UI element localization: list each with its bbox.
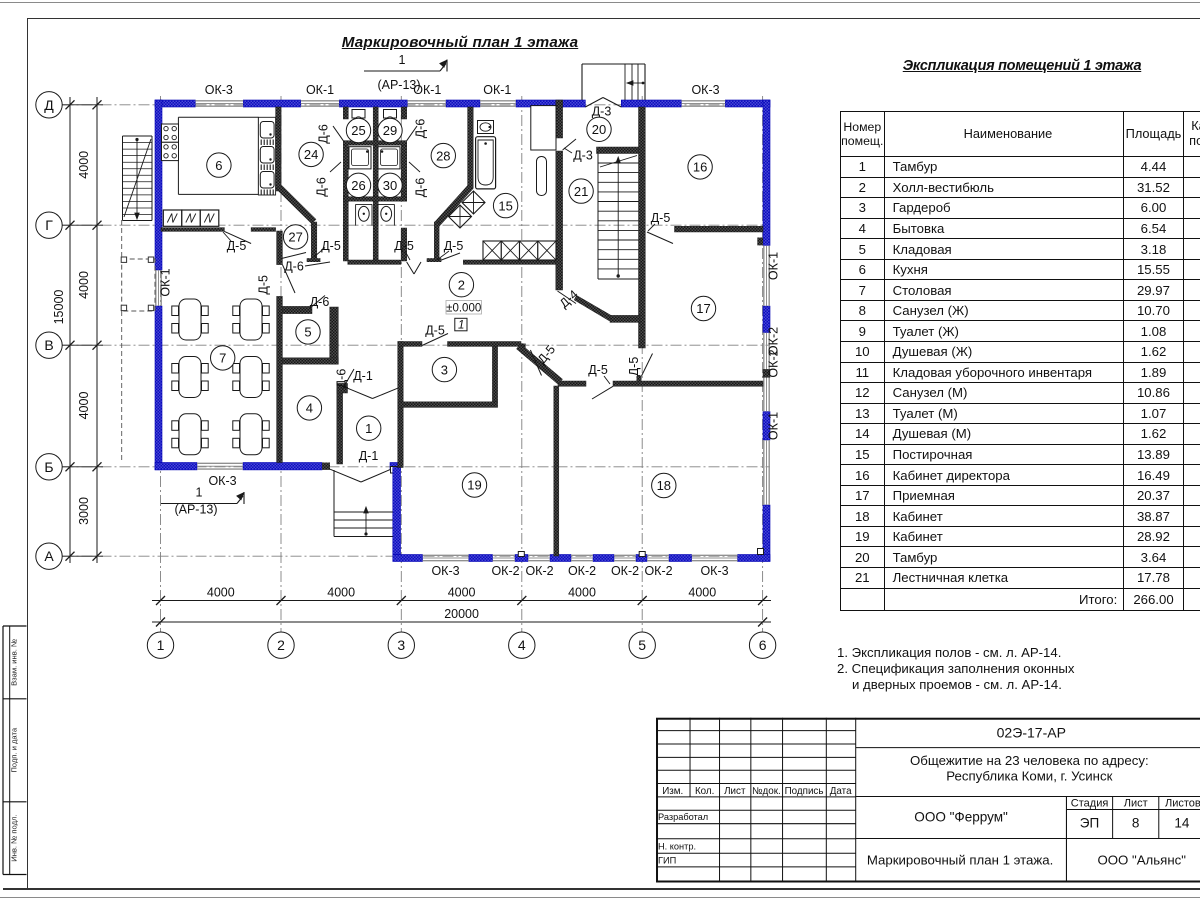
svg-text:Д-5: Д-5	[394, 239, 414, 253]
svg-text:ОК-1: ОК-1	[767, 412, 781, 440]
svg-text:1: 1	[157, 637, 165, 653]
svg-text:15: 15	[498, 198, 512, 213]
svg-text:28: 28	[436, 148, 450, 163]
svg-text:17: 17	[696, 301, 710, 316]
svg-text:3: 3	[441, 362, 448, 377]
svg-text:1: 1	[458, 320, 464, 332]
svg-text:А: А	[44, 548, 54, 564]
svg-text:ГИП: ГИП	[658, 856, 676, 866]
svg-text:26: 26	[351, 178, 365, 193]
svg-text:Маркировочный план 1 этажа.: Маркировочный план 1 этажа.	[867, 853, 1053, 868]
svg-text:Д: Д	[44, 97, 54, 113]
svg-text:Подп. и дата: Подп. и дата	[10, 727, 19, 773]
svg-text:±0.000: ±0.000	[446, 302, 481, 314]
svg-text:№док.: №док.	[752, 786, 781, 797]
svg-text:6: 6	[759, 637, 767, 653]
svg-text:В: В	[44, 337, 53, 353]
svg-text:18: 18	[657, 478, 671, 493]
svg-text:Д-1: Д-1	[353, 369, 373, 383]
svg-text:Д-3: Д-3	[592, 105, 612, 119]
svg-text:Взам. инв. №: Взам. инв. №	[10, 639, 19, 686]
svg-text:Дата: Дата	[830, 786, 852, 797]
svg-text:ОК-2: ОК-2	[525, 564, 553, 578]
svg-text:Д-5: Д-5	[444, 239, 464, 253]
svg-text:ОК-2: ОК-2	[767, 349, 781, 377]
svg-text:Д-6: Д-6	[317, 124, 331, 144]
svg-text:4000: 4000	[207, 586, 235, 600]
svg-text:16: 16	[693, 160, 707, 175]
svg-text:Общежитие на 23 человека по ад: Общежитие на 23 человека по адресу:	[910, 753, 1149, 768]
svg-text:25: 25	[351, 123, 365, 138]
svg-text:Д-5: Д-5	[257, 275, 271, 295]
svg-text:Листов: Листов	[1165, 798, 1200, 810]
svg-text:Изм.: Изм.	[662, 786, 683, 797]
svg-text:29: 29	[383, 123, 397, 138]
svg-text:4000: 4000	[568, 586, 596, 600]
svg-text:20: 20	[592, 122, 606, 137]
svg-text:3: 3	[397, 637, 405, 653]
svg-text:ОК-3: ОК-3	[700, 564, 728, 578]
svg-text:19: 19	[467, 478, 481, 493]
svg-text:Г: Г	[45, 217, 53, 233]
svg-text:ОК-2: ОК-2	[644, 564, 672, 578]
svg-text:7: 7	[219, 351, 226, 366]
svg-text:20000: 20000	[444, 607, 479, 621]
svg-text:4: 4	[518, 637, 526, 653]
svg-text:27: 27	[288, 230, 302, 245]
svg-text:ОК-3: ОК-3	[205, 83, 233, 97]
svg-text:Д-5: Д-5	[651, 211, 671, 225]
svg-text:Д-3: Д-3	[573, 149, 593, 163]
svg-text:Д-5: Д-5	[227, 239, 247, 253]
svg-text:4000: 4000	[77, 392, 91, 420]
svg-text:ОК-1: ОК-1	[413, 83, 441, 97]
svg-text:Б: Б	[44, 459, 53, 475]
svg-text:4000: 4000	[77, 271, 91, 299]
svg-text:14: 14	[1174, 816, 1190, 831]
svg-text:ООО "Альянс": ООО "Альянс"	[1097, 853, 1186, 868]
svg-text:ОК-1: ОК-1	[306, 83, 334, 97]
svg-text:Разработал: Разработал	[658, 813, 708, 823]
svg-text:4: 4	[306, 401, 313, 416]
svg-text:3000: 3000	[77, 497, 91, 525]
svg-text:Подпись: Подпись	[785, 786, 824, 797]
svg-text:ОК-2: ОК-2	[568, 564, 596, 578]
svg-text:Республика Коми, г. Усинск: Республика Коми, г. Усинск	[946, 769, 1112, 784]
svg-text:21: 21	[574, 184, 588, 199]
svg-text:6: 6	[215, 158, 222, 173]
svg-text:24: 24	[304, 147, 318, 162]
svg-text:1: 1	[399, 53, 406, 67]
svg-text:Д-5: Д-5	[627, 357, 641, 377]
svg-text:Д-6: Д-6	[310, 295, 330, 309]
svg-text:ОК-1: ОК-1	[159, 268, 173, 296]
svg-text:ОК-1: ОК-1	[767, 252, 781, 280]
svg-text:Лист: Лист	[1124, 798, 1148, 810]
svg-text:02Э-17-АР: 02Э-17-АР	[997, 725, 1066, 741]
svg-text:Д-6: Д-6	[315, 177, 329, 197]
svg-text:Д-5: Д-5	[321, 239, 341, 253]
svg-text:ОК-3: ОК-3	[691, 83, 719, 97]
svg-text:30: 30	[383, 178, 397, 193]
svg-text:2: 2	[277, 637, 285, 653]
svg-text:Н. контр.: Н. контр.	[658, 842, 696, 852]
svg-text:Д-4: Д-4	[557, 287, 581, 311]
svg-text:Стадия: Стадия	[1071, 798, 1109, 810]
svg-text:Д-5: Д-5	[425, 324, 445, 338]
svg-text:ООО "Феррум": ООО "Феррум"	[914, 810, 1008, 825]
svg-text:ОК-1: ОК-1	[483, 83, 511, 97]
svg-text:8: 8	[1132, 816, 1140, 831]
svg-text:Д-5: Д-5	[588, 363, 608, 377]
svg-text:Д-1: Д-1	[359, 449, 379, 463]
svg-text:5: 5	[638, 637, 646, 653]
svg-text:4000: 4000	[77, 151, 91, 179]
svg-text:ОК-2: ОК-2	[491, 564, 519, 578]
svg-text:2: 2	[458, 277, 465, 292]
svg-text:1: 1	[196, 486, 203, 500]
svg-text:Д-6: Д-6	[335, 369, 349, 389]
svg-text:ОК-2: ОК-2	[611, 564, 639, 578]
svg-text:ЭП: ЭП	[1080, 816, 1099, 831]
svg-text:Д-6: Д-6	[414, 178, 428, 198]
svg-text:1: 1	[365, 421, 372, 436]
svg-text:4000: 4000	[688, 586, 716, 600]
svg-text:15000: 15000	[52, 290, 66, 325]
svg-text:Лист: Лист	[724, 786, 746, 797]
svg-text:ОК-3: ОК-3	[208, 474, 236, 488]
svg-text:5: 5	[304, 325, 311, 340]
svg-text:Д-6: Д-6	[414, 119, 428, 139]
svg-text:4000: 4000	[327, 586, 355, 600]
svg-text:Кол.: Кол.	[695, 786, 714, 797]
svg-text:ОК-3: ОК-3	[431, 564, 459, 578]
svg-text:Д-6: Д-6	[284, 260, 304, 274]
svg-text:4000: 4000	[448, 586, 476, 600]
svg-text:(АР-13): (АР-13)	[174, 503, 217, 517]
svg-text:Инв. № подл.: Инв. № подл.	[10, 814, 19, 861]
